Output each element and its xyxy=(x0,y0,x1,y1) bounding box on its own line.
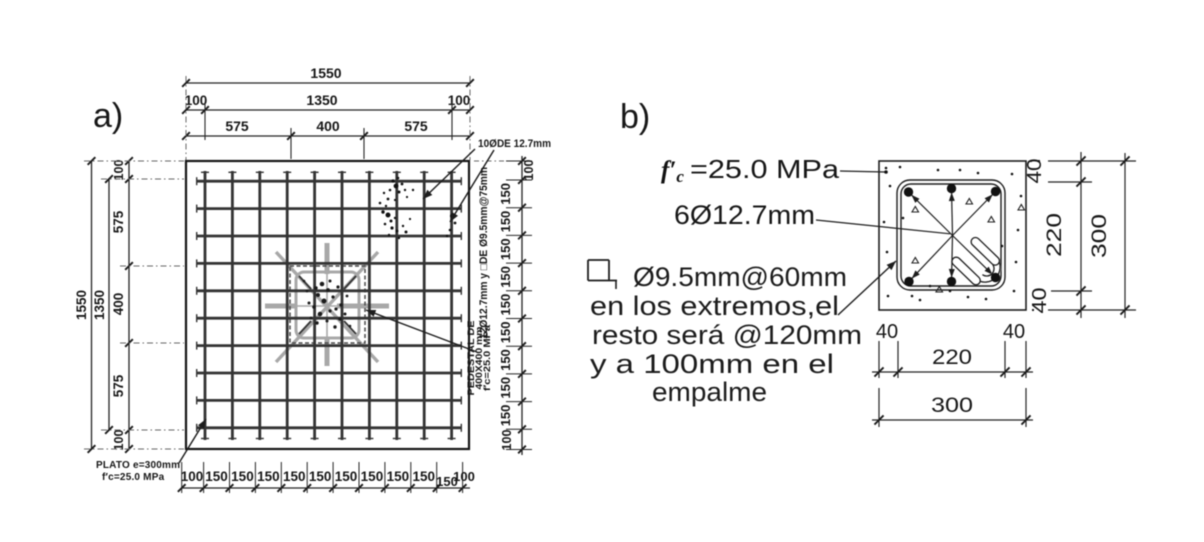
svg-text:150: 150 xyxy=(498,377,513,399)
svg-text:150: 150 xyxy=(309,469,332,484)
svg-text:150: 150 xyxy=(361,469,384,484)
svg-text:300: 300 xyxy=(1088,214,1111,258)
svg-text:empalme: empalme xyxy=(652,377,767,407)
svg-text:100: 100 xyxy=(112,430,126,451)
svg-text:150: 150 xyxy=(498,349,513,371)
svg-text:150: 150 xyxy=(283,469,306,484)
svg-text:100: 100 xyxy=(185,93,208,108)
svg-text:100: 100 xyxy=(181,469,204,484)
svg-text:resto será @120mm: resto será @120mm xyxy=(592,320,862,350)
svg-text:575: 575 xyxy=(111,374,126,397)
svg-text:a): a) xyxy=(93,97,123,135)
svg-text:100: 100 xyxy=(500,430,514,451)
svg-text:100: 100 xyxy=(448,93,471,108)
svg-text:40: 40 xyxy=(1003,321,1025,343)
svg-text:150: 150 xyxy=(498,211,513,233)
svg-text:150: 150 xyxy=(498,238,513,260)
svg-text:f′c=25.0 MPa: f′c=25.0 MPa xyxy=(102,472,165,483)
svg-text:575: 575 xyxy=(404,118,428,134)
svg-text:575: 575 xyxy=(225,118,249,134)
svg-text:f′c=25.0 MPa: f′c=25.0 MPa xyxy=(482,324,492,391)
svg-text:Ø9.5mm@60mm: Ø9.5mm@60mm xyxy=(633,262,847,292)
svg-text:40: 40 xyxy=(1029,288,1051,314)
svg-text:150: 150 xyxy=(205,469,228,484)
svg-text:400: 400 xyxy=(316,118,340,134)
svg-text:400: 400 xyxy=(111,293,126,316)
svg-text:b): b) xyxy=(620,98,650,136)
svg-text:1550: 1550 xyxy=(310,65,341,81)
svg-text:150: 150 xyxy=(257,469,280,484)
svg-text:150: 150 xyxy=(498,321,513,343)
svg-text:100: 100 xyxy=(453,469,475,484)
svg-text:y a 100mm en el: y a 100mm en el xyxy=(590,349,834,379)
svg-text:100: 100 xyxy=(112,160,126,181)
svg-text:1350: 1350 xyxy=(306,92,337,108)
svg-text:150: 150 xyxy=(498,405,513,427)
svg-text:1350: 1350 xyxy=(92,290,107,320)
svg-text:220: 220 xyxy=(932,346,972,369)
svg-text:300: 300 xyxy=(931,394,973,417)
svg-text:150: 150 xyxy=(335,469,358,484)
svg-text:10ØDE 12.7mm: 10ØDE 12.7mm xyxy=(478,138,551,150)
svg-text:220: 220 xyxy=(1043,213,1066,257)
svg-text:40: 40 xyxy=(1024,159,1046,184)
svg-text:6Ø12.7mm: 6Ø12.7mm xyxy=(674,200,815,230)
svg-text:150: 150 xyxy=(498,183,513,205)
svg-text:150: 150 xyxy=(387,469,410,484)
svg-text:40: 40 xyxy=(876,321,898,343)
svg-text:1550: 1550 xyxy=(74,290,89,320)
svg-text:100: 100 xyxy=(522,160,536,181)
svg-text:150: 150 xyxy=(231,469,254,484)
svg-text:150: 150 xyxy=(498,294,513,316)
svg-text:150: 150 xyxy=(498,266,513,288)
svg-text:en los extremos,el: en los extremos,el xyxy=(590,291,839,321)
svg-text:12Ø12.7mm y □DE Ø9.5mm@75mm: 12Ø12.7mm y □DE Ø9.5mm@75mm xyxy=(478,167,490,339)
svg-text:=25.0 MPa: =25.0 MPa xyxy=(690,154,840,184)
svg-text:575: 575 xyxy=(111,210,126,233)
svg-text:150: 150 xyxy=(412,469,435,484)
svg-text:PLATO e=300mm: PLATO e=300mm xyxy=(96,460,180,471)
